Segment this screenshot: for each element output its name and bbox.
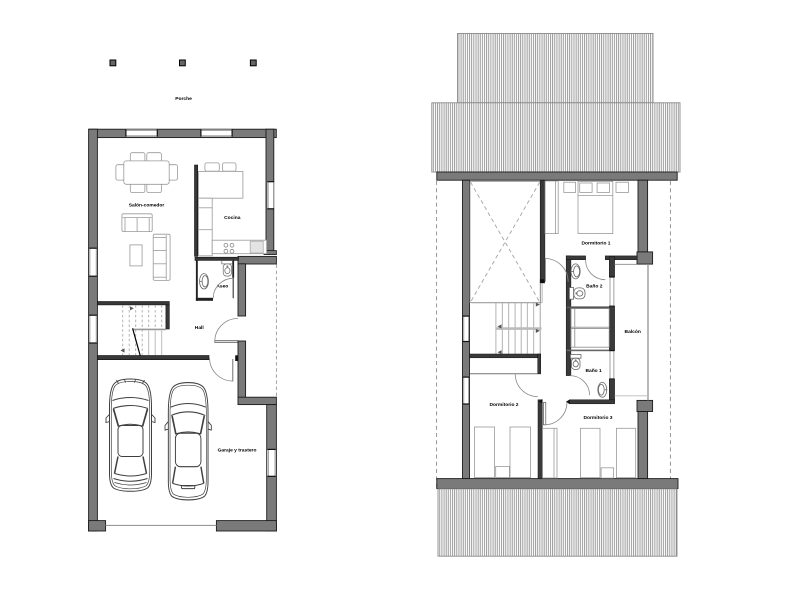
svg-text:Aseo: Aseo — [216, 284, 228, 290]
svg-text:Dormitorio 3: Dormitorio 3 — [583, 415, 612, 421]
svg-text:Hall: Hall — [195, 325, 205, 331]
svg-text:Baño 1: Baño 1 — [585, 368, 602, 374]
svg-text:Cocina: Cocina — [224, 215, 241, 221]
svg-text:Salón-comedor: Salón-comedor — [129, 203, 165, 209]
svg-text:Porche: Porche — [175, 96, 192, 102]
svg-text:Dormitorio 1: Dormitorio 1 — [581, 241, 610, 247]
svg-text:Garaje y trastero: Garaje y trastero — [218, 448, 257, 454]
svg-text:Baño 2: Baño 2 — [586, 283, 603, 289]
svg-text:Balcón: Balcón — [625, 329, 641, 335]
svg-text:Dormitorio 2: Dormitorio 2 — [489, 402, 518, 408]
